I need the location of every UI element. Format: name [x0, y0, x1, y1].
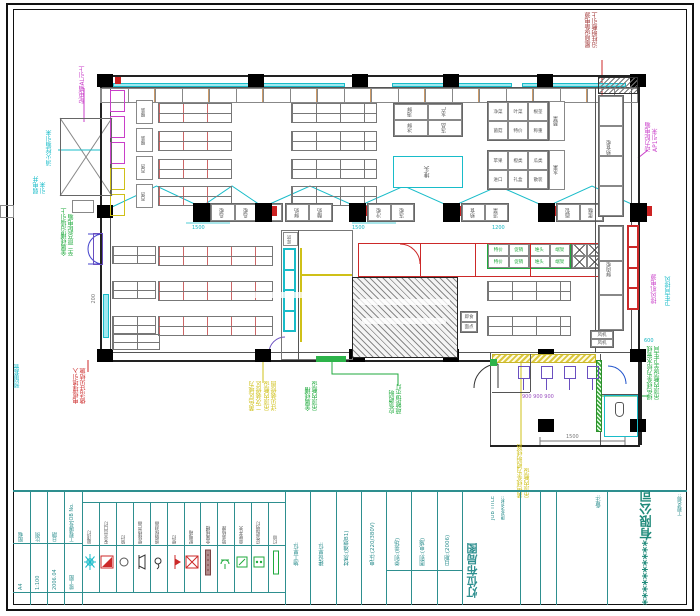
gondola-shelf — [158, 103, 232, 123]
label-grid: 净菜叶菜根茎菌菇特价称重 — [487, 101, 549, 141]
title-block-line — [607, 490, 608, 605]
annotation-text: 排风机电源 — [652, 274, 658, 304]
annotation-text: 吊顶内敷设至卫生间 — [655, 346, 661, 400]
structural-column — [537, 74, 553, 87]
dim-value: 900 900 900 — [522, 394, 554, 400]
gondola-shelf — [158, 316, 273, 336]
middle-field: 施工单位: — [285, 494, 310, 566]
freezer-cell-label: 熟食 — [471, 208, 476, 218]
legend-label-speaker: 壁挂扬声器 — [133, 503, 150, 544]
grid-cell: 海鲜 — [394, 104, 428, 120]
exit-light-icon — [99, 548, 116, 590]
wall-device — [115, 77, 121, 84]
dimension-text: 1500 — [566, 434, 579, 440]
annotation-text: 沿柱明敷引上 — [593, 12, 599, 48]
legend-item-label: 灯带 — [274, 503, 279, 544]
annotation-text: 配电箱AL引上 — [80, 66, 86, 103]
freezer-cell-label: 冷柜 — [377, 208, 382, 218]
side-label: 服装 — [142, 136, 147, 145]
annotation-text: 引来 — [41, 176, 47, 194]
grid-cell: 冻品 — [428, 120, 462, 136]
legend-item-label: 壁灯 — [173, 503, 178, 544]
structural-column — [97, 349, 113, 362]
side-label: 鲜肉柜 — [607, 262, 612, 277]
title-block-line — [540, 490, 541, 605]
gondola-shelf — [487, 281, 571, 301]
dist-box-icon — [184, 548, 201, 590]
grid-cell-label: 海鲜 — [408, 107, 413, 117]
ceiling-light-icon — [82, 548, 99, 590]
cyan-cell — [284, 249, 295, 270]
red-cell — [628, 288, 638, 309]
emergency-light-glyph — [251, 548, 267, 576]
shelf-midline — [292, 169, 376, 170]
annotation-a2: 消火栓箱引来 — [47, 130, 53, 166]
shelf-midline — [159, 169, 231, 170]
grid-cell: 特价 — [508, 121, 528, 140]
grid-cell-label: 散装 — [534, 177, 543, 183]
cyan-cells — [283, 248, 296, 332]
middle-field: 图别:(电施) — [411, 494, 436, 566]
annotation-text: 吊顶内敷设 — [265, 381, 271, 411]
counter-cell — [599, 96, 623, 126]
legend-label-ceiling-light: 吸顶灯 — [82, 503, 99, 544]
grid-cell: 散装 — [528, 170, 548, 189]
annotation-text: 卫生间排风 — [666, 276, 672, 306]
annotation-text: 吊顶内敷设 — [313, 381, 319, 411]
shelf-midline — [113, 255, 155, 256]
annotation-text: 预留套管 — [15, 364, 21, 388]
side-label: 熟食柜 — [607, 140, 612, 155]
smoke-detector-glyph — [150, 548, 166, 576]
wall-line — [530, 243, 531, 277]
dimension-text: 1200 — [492, 225, 505, 231]
downlight-glyph — [116, 548, 132, 576]
title-left-bottom: 竣工图 — [64, 546, 82, 590]
small-box-label: 即食 — [465, 314, 474, 320]
gondola-shelf — [291, 159, 377, 179]
structural-column — [97, 74, 113, 87]
dim-value: 1500 — [192, 225, 205, 231]
middle-field: 电压:(220/380V) — [361, 494, 386, 566]
job-title-en-text: JOB TITLE — [491, 496, 496, 520]
rack-box — [110, 90, 125, 112]
wall-hatch-block — [598, 77, 638, 94]
grid-cell: 礼盒 — [508, 170, 528, 189]
wall-line — [595, 88, 596, 352]
gondola-shelf — [112, 334, 160, 350]
freezer-cell-label: 岛柜 — [244, 208, 249, 218]
middle-field-label: 电压:(220/380V) — [371, 494, 377, 566]
speaker-icon — [133, 548, 150, 590]
light-strip-glyph — [268, 548, 284, 576]
side-label: 蔬菜 — [554, 116, 559, 126]
title-left-top: 日期 — [47, 494, 64, 542]
freezer-column — [255, 203, 272, 222]
grid-cell: 菌菇 — [488, 121, 508, 140]
watermark-streak — [250, 292, 340, 298]
wall-line — [100, 75, 640, 77]
freezer-cells: 冷柜冻柜 — [367, 203, 415, 222]
side-label: 服装 — [142, 108, 147, 117]
grid-cell: 冰鲜 — [394, 120, 428, 136]
grid-cell-label: 净菜 — [494, 109, 503, 115]
storeroom-box: 库房 — [283, 232, 298, 246]
gondola-shelf — [291, 103, 377, 123]
freezer-cells: 面包蛋糕 — [556, 203, 604, 222]
freezer-cell: 凉菜 — [485, 204, 508, 221]
freezer-cell-label: 蛋糕 — [589, 208, 594, 218]
downlight-icon — [116, 548, 133, 590]
fan-cell: 风机 — [591, 339, 613, 347]
legend-label-trunking: 金属线槽 — [200, 503, 217, 544]
promo-box: 堆头 — [393, 156, 463, 188]
red-cell — [628, 247, 638, 268]
annotation-a13: 动力配电箱AP1引来 — [646, 122, 660, 152]
title-block-line — [520, 490, 521, 605]
freezer-cell-label: 凉菜 — [494, 208, 499, 218]
label-grid: 海鲜水产冰鲜冻品 — [393, 103, 463, 137]
wall-line — [420, 243, 421, 277]
structural-column — [352, 74, 368, 87]
freezer-cell: 冷柜 — [368, 204, 391, 221]
freezer-column — [630, 203, 647, 222]
shelf-midline — [159, 196, 231, 197]
side-label: 百货 — [142, 164, 147, 173]
freezer-cell-label: 鲜奶 — [295, 208, 300, 218]
fan-cell-label: 风机 — [598, 332, 607, 338]
sink-fixture — [564, 366, 576, 379]
legend-item-label: 安全出口灯 — [105, 503, 110, 544]
company-name-text: **********有限公司 — [640, 490, 653, 605]
title-block: 图幅A4比例1:100日期2006.04工程编号JOB No.竣工图吸顶灯安全出… — [13, 490, 687, 605]
dim-value: 600 — [644, 338, 654, 344]
title-block-line — [556, 490, 557, 605]
freezer-cell-label: 冻柜 — [400, 208, 405, 218]
grid-cell: 水产 — [428, 104, 462, 120]
grid-cell-label: 进口 — [494, 177, 503, 183]
freezer-cell: 鲜奶 — [286, 204, 309, 221]
annotation-text: 二次装修区 — [257, 381, 263, 411]
middle-field: 材质:(难燃B1) — [336, 494, 361, 566]
annotation-text: 至二层总配电箱 — [69, 208, 75, 256]
rack-label-box: 服装 — [136, 128, 153, 152]
title-left-top: 工程编号JOB No. — [64, 494, 82, 542]
freezer-cell: 岛柜 — [211, 204, 235, 221]
title-left-bottom-label: A4 — [19, 546, 24, 590]
sink-leader — [523, 379, 524, 390]
grid-side-label: 蔬菜 — [549, 101, 565, 141]
shelf-midline — [159, 256, 272, 257]
middle-field-label: 施工单位: — [295, 494, 301, 566]
power-device — [272, 206, 277, 216]
red-room-band — [358, 243, 620, 277]
small-boxes: 即食面点 — [460, 311, 478, 333]
freezer-cell: 酸奶 — [309, 204, 332, 221]
side-label: 库房 — [288, 235, 293, 244]
title-left-bottom: 2006.04 — [47, 546, 64, 590]
trunking-icon — [200, 548, 217, 590]
ceiling-light-glyph — [82, 548, 98, 576]
legend-label-emergency-light: 应急照明灯 — [251, 503, 268, 544]
side-label: 百货 — [142, 192, 147, 201]
fan-cell: 风机 — [591, 331, 613, 339]
grid-cell: 叶菜 — [508, 102, 528, 121]
title-left-top: 比例 — [30, 494, 47, 542]
gondola-shelf — [112, 316, 156, 334]
legend-item-label: 筒灯 — [122, 503, 127, 544]
legend-label-switch: 单联开关 — [234, 503, 251, 544]
annotation-a8: 金属线槽吊顶内敷设 — [306, 381, 320, 411]
light-strip-icon — [268, 548, 285, 590]
power-device — [647, 206, 652, 216]
job-title-label-text: 图纸名称: — [501, 496, 507, 520]
legend-item-label: 暗装插座 — [223, 503, 228, 544]
dim-value: 200 — [92, 294, 97, 304]
structural-column — [248, 74, 264, 87]
annotation-a15: 卫生间排风 — [666, 276, 672, 306]
legend-item-label: 吸顶灯 — [88, 503, 93, 544]
shelf-midline — [113, 325, 155, 326]
storage-outline — [60, 118, 112, 196]
legend-item-label: 配电箱 — [190, 503, 195, 544]
grid-cell: 苹果 — [488, 151, 508, 170]
structural-column — [630, 349, 646, 362]
grid-cell: 进口 — [488, 170, 508, 189]
counter-cell — [599, 156, 623, 186]
exit-light-glyph — [99, 548, 115, 576]
title-left-bottom: A4 — [13, 546, 30, 590]
structural-column — [443, 74, 459, 87]
wall-line — [490, 445, 640, 447]
counter-cell — [599, 295, 623, 330]
cyan-cell — [284, 270, 295, 291]
title-left-bottom-label: 1:100 — [36, 546, 41, 590]
freezer-cell-label: 面包 — [566, 208, 571, 218]
gondola-shelf — [112, 246, 156, 264]
toilet-fixture — [615, 402, 624, 417]
wall-line — [530, 354, 531, 392]
project-name-label: 工程名称: — [678, 494, 686, 544]
grid-cell-label: 冻品 — [442, 123, 447, 133]
legend-label-exit-light: 安全出口灯 — [99, 503, 116, 544]
legend-label-socket: 暗装插座 — [217, 503, 234, 544]
freezer-column — [443, 203, 460, 222]
shelf-midline — [292, 141, 376, 142]
renovation-band — [492, 354, 596, 363]
legend-label-light-strip: 灯带 — [268, 503, 285, 544]
socket-glyph — [217, 548, 233, 576]
grid-cell-label: 菌菇 — [494, 128, 503, 134]
shelf-midline — [292, 196, 376, 197]
title-left-top-label: 图幅 — [19, 494, 24, 542]
dimension-text: 1500 — [352, 225, 365, 231]
drawing-sheet: 海鲜水产冰鲜冻品净菜叶菜根茎菌菇特价称重蔬菜苹果橙类瓜类进口礼盒散装水果特价促销… — [0, 0, 700, 616]
annotation-a9: 应急照明疏散指示灯 — [390, 384, 404, 414]
title-block-line — [13, 490, 687, 492]
legend-item-label: 应急照明灯 — [257, 503, 262, 544]
grid-cell-label: 橙类 — [514, 158, 523, 164]
grid-cell-label: 瓜类 — [534, 158, 543, 164]
shelf-midline — [159, 113, 231, 114]
shelf-midline — [113, 342, 159, 343]
gondola-shelf — [112, 281, 156, 299]
annotation-a11: 绿色线条为给水管线吊顶内敷设至卫生间 — [648, 346, 662, 400]
grid-cell: 橙类 — [508, 151, 528, 170]
rack-box — [110, 116, 125, 138]
shelf-midline — [159, 326, 272, 327]
gondola-shelf — [291, 131, 377, 151]
grid-cell-label: 礼盒 — [514, 177, 523, 183]
title-block-line — [13, 592, 285, 593]
dist-box-glyph — [184, 548, 200, 576]
annotation-a14: 排风机电源 — [652, 274, 658, 304]
grid-side-label: 水果 — [549, 150, 565, 190]
toilet-door-arc — [608, 366, 626, 384]
middle-field: 建设单位: — [310, 494, 335, 566]
freezer-cell: 冻柜 — [391, 204, 414, 221]
grid-cell-label: 称重 — [534, 128, 543, 134]
job-title-en: JOB TITLE — [491, 496, 500, 556]
wall-light-glyph — [167, 548, 183, 576]
freezer-column — [538, 203, 555, 222]
trunking-glyph — [200, 548, 216, 576]
grid-cell-label: 水产 — [442, 107, 447, 117]
grid-cell: 称重 — [528, 121, 548, 140]
annotation-a7: 黄色区域为二次装修区吊顶内敷设详见装修图 — [250, 381, 278, 411]
grid-cell-label: 特价 — [514, 128, 523, 134]
sink-leader — [569, 379, 570, 390]
dimension-text: 900 900 900 — [522, 394, 554, 400]
remark-label-text: 备注: — [597, 495, 603, 508]
title-left-bottom: 1:100 — [30, 546, 47, 590]
room-door-arc — [474, 364, 498, 388]
freezer-column — [193, 203, 210, 222]
annotation-a12: 屋面设备电源沿柱明敷引上 — [586, 12, 600, 48]
annotation-text: AP1引来 — [653, 122, 659, 152]
counter-label: 鲜肉柜 — [607, 262, 612, 279]
shelf-midline — [488, 326, 570, 327]
watermark-streak — [358, 299, 450, 305]
grid-cell: 瓜类 — [528, 151, 548, 170]
annotation-a5: 电缆埋地引入做法详见结施 — [74, 368, 88, 404]
watermark-streak — [362, 318, 446, 324]
gondola-shelf — [158, 131, 232, 151]
gondola-shelf — [158, 281, 273, 301]
legend-item-label: 感烟探测器 — [156, 503, 161, 544]
middle-field: 类别:(卖场) — [386, 494, 411, 566]
dim-bracket — [540, 437, 625, 445]
middle-field-label: 日期:(2006) — [446, 494, 452, 566]
mini-box — [0, 205, 14, 218]
sink-fixture — [587, 366, 599, 379]
title-block-line — [462, 490, 463, 605]
grid-cell-label: 冰鲜 — [408, 123, 413, 133]
dim-value: 1500 — [566, 434, 579, 440]
green-dot — [490, 359, 497, 366]
legend-label-downlight: 筒灯 — [116, 503, 133, 544]
remark-label: 备注: — [597, 495, 606, 535]
wall-line — [100, 360, 492, 362]
dim-value: 1200 — [492, 225, 505, 231]
title-left-top-label: 比例 — [36, 494, 41, 542]
annotation-text: 做法详见结施 — [81, 368, 87, 404]
drawing-title-text: 灯位布局图 — [467, 498, 479, 598]
middle-field-label: 类别:(卖场) — [396, 494, 402, 566]
wall-line — [460, 352, 490, 353]
floor-plan: 海鲜水产冰鲜冻品净菜叶菜根茎菌菇特价称重蔬菜苹果橙类瓜类进口礼盒散装水果特价促销… — [0, 0, 700, 490]
annotation-text: 消火栓箱引来 — [47, 130, 53, 166]
grid-cell: 根茎 — [528, 102, 548, 121]
project-label-text: 工程名称: — [678, 494, 683, 516]
annotation-a3: 弱电井引来 — [34, 176, 48, 194]
freezer-column — [349, 203, 366, 222]
socket-icon — [217, 548, 234, 590]
grid-cell-label: 叶菜 — [514, 109, 523, 115]
grid-cell-label: 根茎 — [534, 109, 543, 115]
annotation-a1: 配电箱AL引上 — [80, 66, 86, 103]
freezer-cell-label: 岛柜 — [220, 208, 225, 218]
smoke-detector-icon — [150, 548, 167, 590]
red-cells — [627, 225, 639, 310]
freezer-cell: 熟食 — [462, 204, 485, 221]
switch-icon — [234, 548, 251, 590]
title-left-bottom-label: 竣工图 — [70, 546, 75, 590]
sink-fixture — [518, 366, 530, 379]
side-label: 堆头 — [425, 166, 431, 178]
title-block-line — [13, 543, 82, 544]
small-box-cell: 即食 — [461, 312, 477, 322]
counter-label: 熟食柜 — [607, 140, 612, 157]
annotation-text: 疏散指示灯 — [397, 384, 403, 414]
legend-item-label: 壁挂扬声器 — [139, 503, 144, 544]
title-left-top-label: 工程编号JOB No. — [70, 494, 75, 542]
grid-cell-label: 苹果 — [494, 158, 503, 164]
shelf-midline — [488, 291, 570, 292]
wall-light-icon — [167, 548, 184, 590]
counter-cell — [599, 226, 623, 261]
sink-leader — [592, 379, 593, 390]
gondola-shelf — [487, 316, 571, 336]
red-cell — [628, 268, 638, 289]
counter-cell — [599, 186, 623, 216]
side-label: 水果 — [554, 165, 559, 175]
emergency-light-icon — [251, 548, 268, 590]
gondola-shelf — [158, 246, 273, 266]
structural-column — [538, 419, 554, 432]
cyan-cell — [284, 311, 295, 332]
company-name: **********有限公司 — [627, 492, 667, 604]
rack-box — [110, 194, 125, 216]
legend-item-label: 金属线槽 — [207, 503, 212, 544]
sink-fixture — [541, 366, 553, 379]
grid-cell: 净菜 — [488, 102, 508, 121]
green-leader — [332, 360, 398, 386]
dimension-text: 600 — [644, 338, 654, 344]
freezer-cell-label: 酸奶 — [318, 208, 323, 218]
red-cell — [628, 226, 638, 247]
door-frame — [93, 233, 103, 265]
annotation-a6: 预留套管 — [15, 364, 21, 388]
freezer-cells: 鲜奶酸奶 — [285, 203, 333, 222]
yellow-route-h — [300, 274, 352, 276]
shelf-midline — [159, 141, 231, 142]
middle-field-label: 建设单位: — [320, 494, 326, 566]
checkout-strip — [316, 356, 346, 362]
title-left-top: 图幅 — [13, 494, 30, 542]
annotation-a4: 金属线槽沿墙引上至二层总配电箱 — [62, 208, 76, 256]
title-left-top-label: 日期 — [53, 494, 58, 542]
